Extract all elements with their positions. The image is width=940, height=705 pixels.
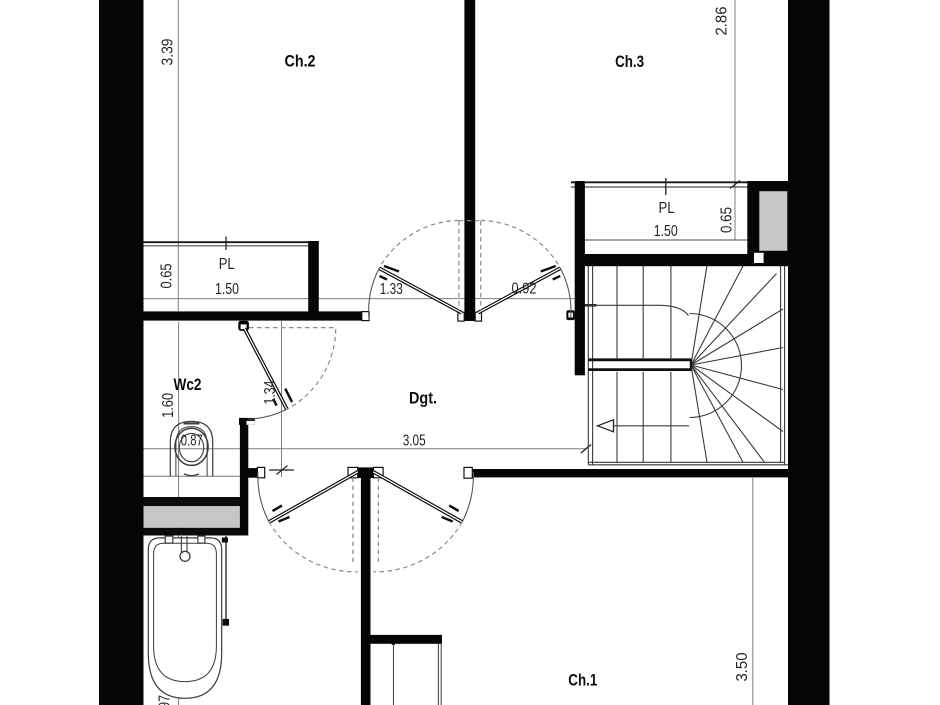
svg-text:0.97: 0.97: [157, 695, 174, 705]
svg-text:3.05: 3.05: [403, 433, 426, 450]
svg-text:Ch.2: Ch.2: [285, 52, 316, 71]
svg-text:1.50: 1.50: [215, 281, 239, 298]
svg-text:PL: PL: [219, 256, 235, 273]
svg-text:3.50: 3.50: [734, 652, 751, 681]
svg-text:1.60: 1.60: [160, 393, 177, 418]
svg-text:Ch.1: Ch.1: [568, 671, 597, 690]
svg-text:0.87: 0.87: [181, 433, 203, 450]
svg-text:0.65: 0.65: [719, 207, 736, 233]
svg-text:0.92: 0.92: [512, 281, 537, 298]
svg-text:PL: PL: [659, 200, 675, 217]
svg-text:Ch.3: Ch.3: [615, 52, 644, 71]
svg-text:2.86: 2.86: [714, 6, 731, 35]
svg-text:3.39: 3.39: [160, 38, 177, 65]
svg-text:Dgt.: Dgt.: [409, 389, 437, 408]
svg-text:1.34: 1.34: [262, 380, 279, 404]
svg-text:0.65: 0.65: [159, 263, 176, 288]
svg-text:1.50: 1.50: [654, 223, 678, 240]
svg-text:Wc2: Wc2: [174, 375, 202, 394]
svg-text:1.33: 1.33: [380, 281, 403, 298]
